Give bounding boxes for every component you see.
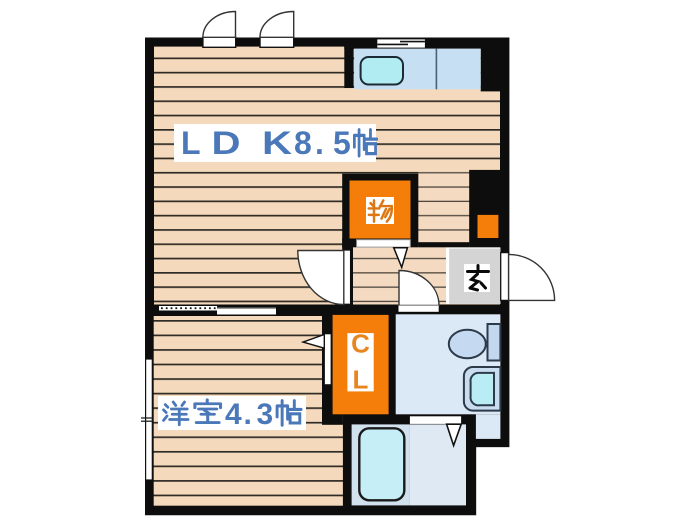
svg-text:.: . [315,125,324,161]
svg-text:L: L [181,125,201,161]
svg-text:5: 5 [333,125,351,161]
svg-text:D: D [212,125,241,161]
svg-text:L: L [353,365,369,395]
svg-text:3: 3 [257,398,274,431]
svg-text:8: 8 [294,125,312,161]
svg-text:C: C [351,329,370,359]
svg-text:4: 4 [225,398,242,431]
svg-text:K: K [262,125,292,161]
svg-text:.: . [244,398,252,431]
